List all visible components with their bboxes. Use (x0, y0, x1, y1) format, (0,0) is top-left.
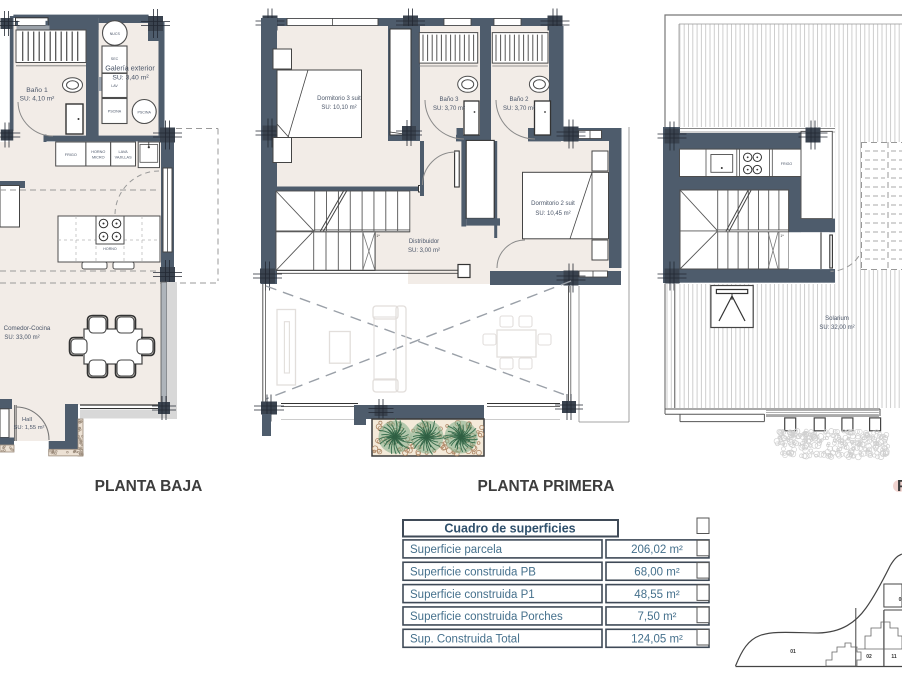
svg-text:Baño 3: Baño 3 (439, 97, 459, 103)
svg-text:Dormitorio 3 suit: Dormitorio 3 suit (317, 96, 361, 102)
svg-text:SU: 3,40 m²: SU: 3,40 m² (112, 75, 149, 82)
svg-text:SU: 1,55 m²: SU: 1,55 m² (14, 425, 45, 431)
svg-text:PL: PL (897, 478, 902, 495)
svg-text:PLANTA BAJA: PLANTA BAJA (95, 478, 203, 495)
svg-text:Dormitorio 2 suit: Dormitorio 2 suit (531, 201, 575, 207)
svg-text:HORNO: HORNO (91, 150, 105, 154)
svg-text:SU: 32,00 m²: SU: 32,00 m² (819, 325, 854, 331)
svg-text:0: 0 (899, 597, 902, 603)
svg-text:Superficie construida PB: Superficie construida PB (410, 566, 536, 578)
svg-text:SU: 3,70 m²: SU: 3,70 m² (433, 106, 465, 112)
svg-text:SU: 10,45 m²: SU: 10,45 m² (535, 211, 570, 217)
svg-text:01: 01 (790, 649, 796, 655)
svg-text:SU: 4,10 m²: SU: 4,10 m² (20, 96, 56, 103)
svg-text:Hall: Hall (22, 417, 32, 423)
svg-text:Solarium: Solarium (825, 316, 849, 322)
svg-text:124,05 m²: 124,05 m² (631, 634, 683, 646)
svg-text:Baño 2: Baño 2 (509, 97, 529, 103)
svg-text:HORNO: HORNO (103, 247, 117, 251)
svg-text:68,00 m²: 68,00 m² (634, 566, 680, 578)
svg-text:FRIGO: FRIGO (781, 162, 793, 166)
svg-text:206,02 m²: 206,02 m² (631, 544, 683, 556)
svg-text:11: 11 (891, 654, 897, 660)
svg-text:MICRO: MICRO (92, 156, 105, 160)
svg-text:48,55 m²: 48,55 m² (634, 589, 680, 601)
svg-text:Comedor-Cocina: Comedor-Cocina (4, 325, 51, 332)
svg-text:Superficie parcela: Superficie parcela (410, 544, 503, 556)
svg-text:PSCINA: PSCINA (108, 110, 122, 114)
svg-text:SU: 10,10 m²: SU: 10,10 m² (321, 105, 356, 111)
svg-text:Distribuidor: Distribuidor (409, 239, 439, 245)
svg-text:Galería exterior: Galería exterior (105, 64, 155, 73)
svg-text:NUCS: NUCS (110, 32, 121, 36)
svg-text:Superficie construida Porches: Superficie construida Porches (410, 611, 563, 623)
svg-text:LAV: LAV (111, 84, 118, 88)
svg-text:LAVA: LAVA (119, 150, 129, 154)
svg-text:Superficie construida P1: Superficie construida P1 (410, 589, 535, 601)
svg-text:Cuadro de superficies: Cuadro de superficies (444, 522, 575, 536)
svg-text:Sup. Construida Total: Sup. Construida Total (410, 634, 520, 646)
svg-text:PLANTA PRIMERA: PLANTA PRIMERA (478, 478, 615, 495)
svg-text:SU: 33,00 m²: SU: 33,00 m² (4, 335, 39, 341)
svg-text:Baño 1: Baño 1 (26, 87, 48, 94)
svg-text:7,50 m²: 7,50 m² (638, 611, 677, 623)
svg-text:PSCINA: PSCINA (138, 111, 152, 115)
svg-text:SU: 3,70 m²: SU: 3,70 m² (503, 106, 535, 112)
svg-text:02: 02 (866, 654, 872, 660)
svg-text:VAJILLAS: VAJILLAS (115, 156, 132, 160)
svg-text:FRIGO: FRIGO (65, 153, 77, 157)
svg-text:SU: 3,00 m²: SU: 3,00 m² (408, 248, 440, 254)
svg-text:SEC: SEC (111, 57, 119, 61)
